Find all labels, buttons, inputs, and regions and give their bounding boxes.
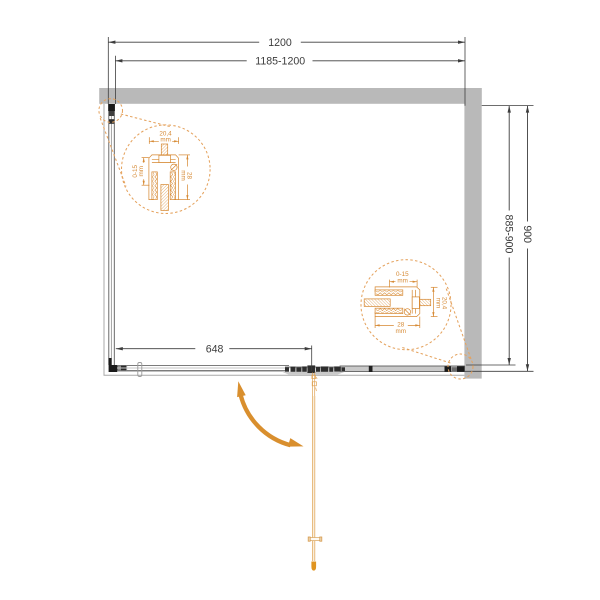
svg-text:1200: 1200 xyxy=(268,37,292,49)
svg-text:mm: mm xyxy=(138,166,145,177)
svg-text:mm: mm xyxy=(397,277,408,284)
svg-text:mm: mm xyxy=(396,328,407,335)
svg-text:648: 648 xyxy=(206,343,224,355)
svg-text:mm: mm xyxy=(160,137,171,144)
svg-text:885-900: 885-900 xyxy=(503,215,515,254)
svg-text:900: 900 xyxy=(521,225,533,243)
svg-text:mm: mm xyxy=(179,170,186,181)
svg-text:1185-1200: 1185-1200 xyxy=(255,55,305,67)
svg-text:mm: mm xyxy=(434,298,441,309)
